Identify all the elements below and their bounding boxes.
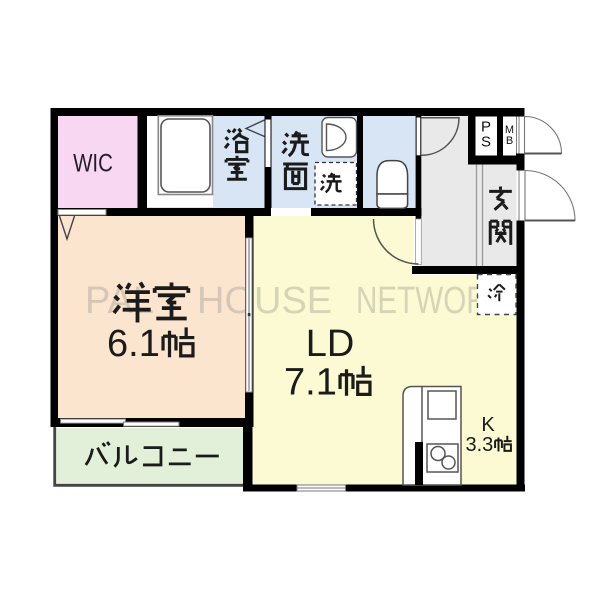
svg-text:7.1: 7.1: [284, 362, 337, 404]
svg-text:B: B: [506, 135, 513, 147]
svg-text:6.1: 6.1: [107, 323, 160, 365]
svg-text:HOUSE: HOUSE: [197, 280, 332, 322]
svg-text:WIC: WIC: [73, 149, 113, 177]
svg-text:3.3: 3.3: [466, 434, 494, 456]
svg-text:S: S: [481, 134, 491, 151]
svg-text:LD: LD: [306, 323, 355, 365]
svg-text:K: K: [481, 414, 495, 436]
